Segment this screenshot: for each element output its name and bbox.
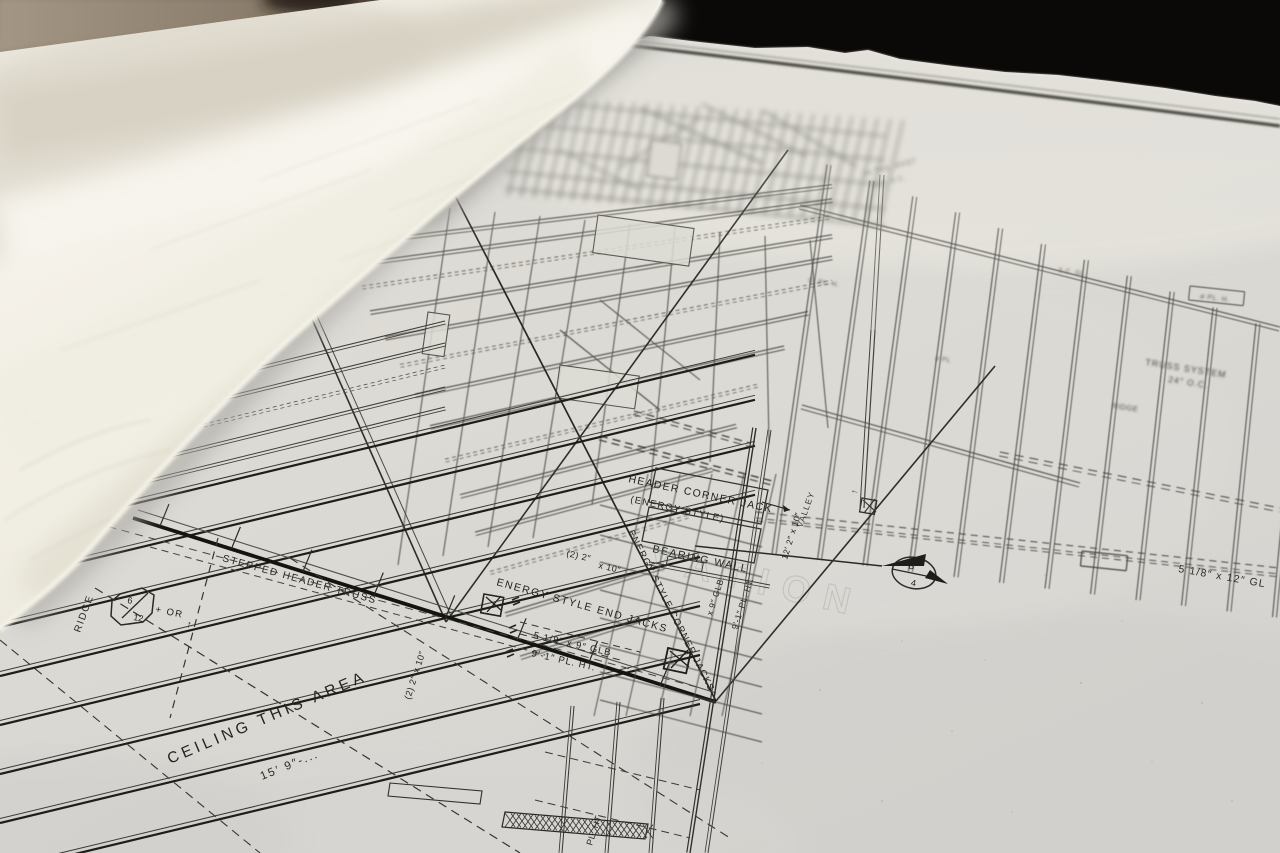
svg-text:12: 12: [133, 612, 145, 624]
